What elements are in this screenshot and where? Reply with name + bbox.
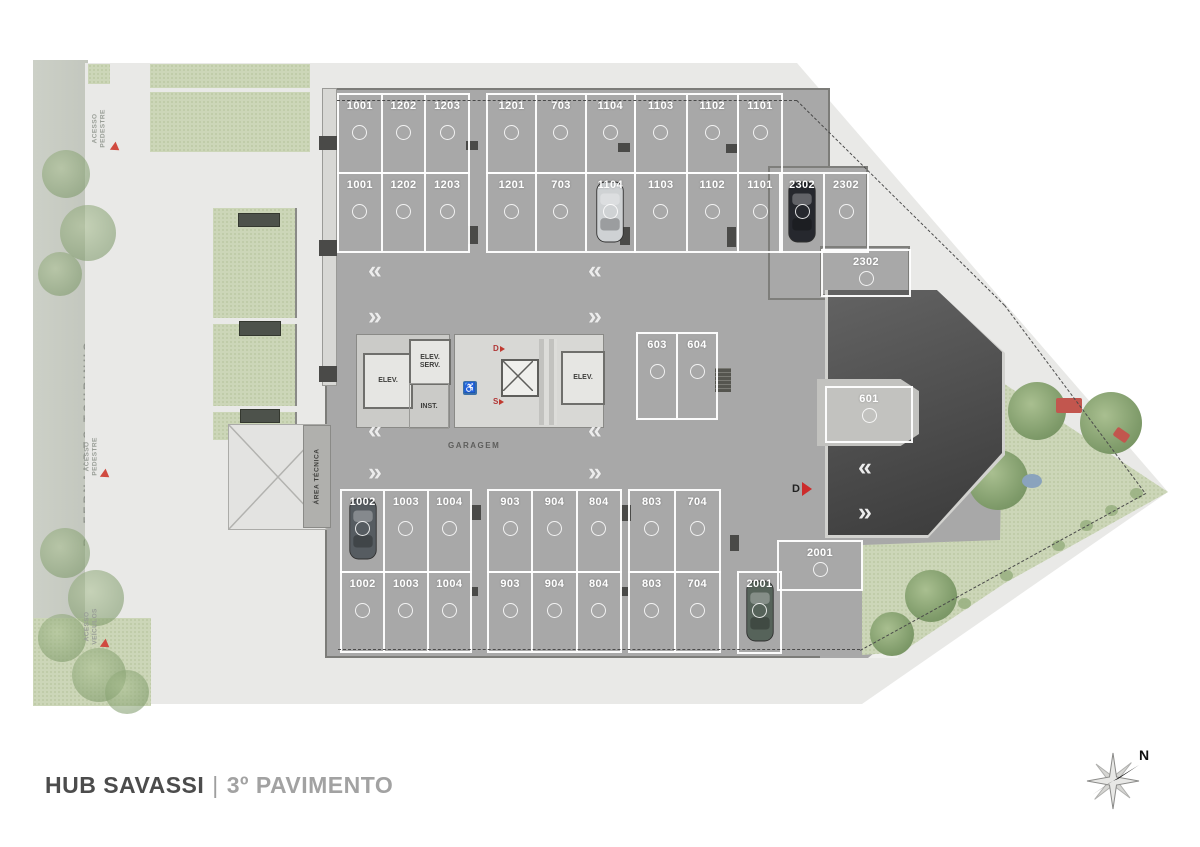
spot-badge: [839, 204, 854, 219]
spot-badge: [705, 125, 720, 140]
spot-number: 1004: [436, 496, 462, 508]
parking-spot-903: 903: [489, 491, 533, 571]
compass-rose: N: [1082, 742, 1154, 819]
stair-down-label: D: [493, 344, 499, 353]
tree: [905, 570, 957, 622]
stair-treads: [539, 339, 557, 425]
spot-number: 2302: [853, 256, 879, 268]
stair-arrow-icon: [499, 399, 504, 405]
parking-spot-604: 604: [678, 334, 716, 418]
spot-number: 803: [642, 578, 662, 590]
tree: [42, 150, 90, 198]
spot-number: 601: [859, 393, 879, 405]
parking-spot-1103: 1103: [636, 95, 688, 172]
pilaster: [730, 535, 739, 551]
wheelchair-icon: ♿: [463, 381, 477, 395]
parking-spot-903: 903: [489, 573, 533, 651]
spot-badge: [591, 603, 606, 618]
parking-spot-1201: 1201: [488, 95, 537, 172]
spot-number: 804: [589, 578, 609, 590]
parking-spot-1002: 1002: [342, 573, 385, 651]
chevron-right-icon: »: [588, 304, 600, 329]
parking-spot-703: 703: [537, 95, 586, 172]
parking-spot-2302: 2302: [823, 251, 909, 295]
elevator-right: ELEV.: [561, 351, 605, 405]
spot-badge: [644, 521, 659, 536]
spot-badge: [650, 364, 665, 379]
spot-number: 1001: [347, 179, 373, 191]
spot-badge: [442, 603, 457, 618]
garage-label: GARAGEM: [448, 441, 500, 450]
parking-spot-1202: 1202: [383, 174, 427, 251]
spot-badge: [398, 521, 413, 536]
parking-group-row-b-4: 1101: [737, 172, 783, 253]
spot-number: 1104: [598, 179, 623, 191]
pilaster: [319, 136, 337, 150]
parking-group-row-a-4: 1101: [737, 93, 783, 174]
spot-badge: [644, 603, 659, 618]
spot-number: 1101: [747, 179, 772, 191]
exit-letter: D: [792, 483, 800, 495]
spot-number: 1202: [390, 100, 416, 112]
technical-area: ÁREA TÉCNICA: [303, 425, 331, 528]
parking-spot-1101: 1101: [739, 95, 781, 172]
spot-badge: [705, 204, 720, 219]
spot-number: 703: [551, 100, 571, 112]
parking-spot-603: 603: [638, 334, 678, 418]
spot-number: 1001: [347, 100, 373, 112]
planter: [239, 321, 281, 336]
spot-number: 604: [687, 339, 707, 351]
spot-badge: [398, 603, 413, 618]
elevator-left: ELEV.: [363, 353, 413, 409]
parking-spot-804: 804: [578, 491, 620, 571]
parking-group-row-b-2: 1201703 1104: [486, 172, 636, 253]
spot-badge: [591, 521, 606, 536]
spot-number: 704: [687, 578, 707, 590]
spot-badge: [442, 521, 457, 536]
pilaster: [319, 240, 337, 256]
chevron-left-icon: «: [858, 455, 870, 480]
facade-hatch-strip: [322, 88, 337, 386]
elevator-block-left: ELEV. ELEV. SERV. INST.: [356, 334, 450, 428]
parking-group-row-c-2: 903904804: [487, 489, 622, 573]
spot-number: 903: [500, 578, 520, 590]
parking-spot-1203: 1203: [426, 174, 468, 251]
spot-badge: [440, 204, 455, 219]
parking-spot-1002: 1002: [342, 491, 385, 571]
spot-badge: [653, 125, 668, 140]
pilaster: [319, 366, 337, 382]
tree: [1080, 392, 1142, 454]
parking-spot-803: 803: [630, 573, 676, 651]
parking-spot-704: 704: [676, 573, 720, 651]
spot-number: 1003: [393, 578, 419, 590]
parking-spot-703: 703: [537, 174, 586, 251]
spot-number: 1103: [648, 100, 673, 112]
parking-group-603-604: 603604: [636, 332, 718, 420]
spot-number: 1203: [434, 179, 460, 191]
spot-number: 904: [545, 578, 565, 590]
spot-badge: [553, 125, 568, 140]
parking-spot-1201: 1201: [488, 174, 537, 251]
spot-number: 703: [551, 179, 571, 191]
parking-group-row-b-1: 100112021203: [337, 172, 470, 253]
parking-group-row-a-3: 11031102: [634, 93, 739, 174]
parking-spot-1104: 1104: [587, 174, 634, 251]
parking-spot-1001: 1001: [339, 174, 383, 251]
tree: [870, 612, 914, 656]
parking-group-row-b-3: 11031102: [634, 172, 739, 253]
spot-badge: [690, 364, 705, 379]
spot-number: 903: [500, 496, 520, 508]
parking-spot-1102: 1102: [688, 95, 738, 172]
parking-spot-601: 601: [827, 388, 911, 441]
parking-spot-2302: 2302: [825, 174, 867, 251]
spot-badge: [352, 204, 367, 219]
stair-up-label: S: [493, 397, 498, 406]
spot-badge: [504, 125, 519, 140]
spot-badge: [440, 125, 455, 140]
spot-badge: [795, 204, 810, 219]
parking-spot-1004: 1004: [429, 573, 470, 651]
spot-number: 1203: [434, 100, 460, 112]
spot-badge: [355, 603, 370, 618]
parking-spot-904: 904: [533, 573, 577, 651]
planter: [238, 213, 280, 227]
spot-badge: [503, 603, 518, 618]
spot-number: 1102: [700, 100, 725, 112]
spot-number: 1004: [436, 578, 462, 590]
spot-badge: [653, 204, 668, 219]
spot-number: 1101: [747, 100, 772, 112]
parking-group-row-c-3: 803704: [628, 489, 721, 573]
spot-number: 2001: [746, 578, 772, 590]
parking-group-row-a-1: 100112021203: [337, 93, 470, 174]
chevron-right-icon: »: [858, 500, 870, 525]
spot-badge: [862, 408, 877, 423]
stair-down-marker: D: [493, 344, 505, 353]
parking-spot-1001: 1001: [339, 95, 383, 172]
planting-strip: [150, 92, 310, 152]
tree: [60, 205, 116, 261]
parking-group-row-d-2: 903904804: [487, 571, 622, 653]
parking-spot-1203: 1203: [426, 95, 468, 172]
spot-badge: [690, 603, 705, 618]
tree: [38, 614, 86, 662]
chevron-left-icon: «: [588, 258, 600, 283]
spot-number: 1003: [393, 496, 419, 508]
spot-badge: [753, 204, 768, 219]
parking-spot-1202: 1202: [383, 95, 427, 172]
spot-number: 1002: [350, 496, 376, 508]
tree: [105, 670, 149, 714]
spot-badge: [690, 521, 705, 536]
parking-spot-1003: 1003: [385, 491, 428, 571]
spot-badge: [752, 603, 767, 618]
spot-badge: [547, 603, 562, 618]
title-separator: |: [212, 772, 218, 798]
floor-name: 3º PAVIMENTO: [227, 772, 393, 798]
spot-badge: [553, 204, 568, 219]
spot-badge: [504, 204, 519, 219]
spot-number: 2302: [789, 179, 815, 191]
stair-up-marker: S: [493, 397, 504, 406]
stair-core: D S ♿ ELEV.: [454, 334, 604, 428]
installations-room: INST.: [409, 383, 449, 429]
spot-badge: [603, 125, 618, 140]
planting-strip: [150, 64, 310, 88]
parking-spot-2302: 2302: [781, 174, 825, 251]
spot-number: 1102: [700, 179, 725, 191]
parking-group-row-d-1: 100210031004: [340, 571, 472, 653]
spot-number: 1201: [499, 100, 525, 112]
chevron-right-icon: »: [368, 304, 380, 329]
parking-spot-2001: 2001: [779, 542, 861, 589]
chevron-right-icon: »: [368, 460, 380, 485]
spot-number: 904: [545, 496, 565, 508]
spot-number: 603: [647, 339, 667, 351]
spot-badge: [396, 204, 411, 219]
exit-marker: D: [792, 482, 812, 496]
spot-badge: [547, 521, 562, 536]
spot-number: 1103: [648, 179, 673, 191]
project-name: HUB SAVASSI: [45, 772, 204, 798]
bush: [958, 598, 971, 609]
spot-badge: [503, 521, 518, 536]
technical-area-label: ÁREA TÉCNICA: [314, 448, 321, 504]
parking-group-row-c-1: 100210031004: [340, 489, 472, 573]
spot-badge: [813, 562, 828, 577]
sheet-title: HUB SAVASSI|3º PAVIMENTO: [45, 772, 393, 799]
parking-spot-1103: 1103: [636, 174, 688, 251]
spot-number: 1104: [598, 100, 623, 112]
parking-spot-2001-vertical: 2001: [737, 571, 782, 654]
parking-spot-2001-horizontal: 2001: [777, 540, 863, 591]
spot-badge: [396, 125, 411, 140]
parking-spot-2302-horizontal: 2302: [821, 249, 911, 297]
parking-spot-904: 904: [533, 491, 577, 571]
elevator-shaft: [501, 359, 539, 397]
parking-spot-804: 804: [578, 573, 620, 651]
parking-spot-1003: 1003: [385, 573, 428, 651]
parking-spot-601: 601: [825, 386, 913, 443]
planter: [240, 409, 280, 423]
chevron-left-icon: «: [368, 258, 380, 283]
pond: [1022, 474, 1042, 488]
projection-line: [338, 649, 860, 650]
parking-group-row-a-2: 12017031104: [486, 93, 636, 174]
parking-spot-1102: 1102: [688, 174, 738, 251]
parking-spot-704: 704: [676, 491, 720, 571]
tree: [38, 252, 82, 296]
tree: [40, 528, 90, 578]
spot-number: 1201: [499, 179, 525, 191]
elevator-service: ELEV. SERV.: [409, 339, 451, 385]
spot-number: 804: [589, 496, 609, 508]
compass-north-label: N: [1139, 747, 1149, 763]
access-vehicles-label: ACESSO VEÍCULOS: [84, 596, 101, 656]
parking-spot-1104: 1104: [587, 95, 634, 172]
parking-spot-2001: 2001: [739, 573, 780, 652]
spot-badge: [603, 204, 618, 219]
chevron-right-icon: »: [588, 460, 600, 485]
parking-spot-1004: 1004: [429, 491, 470, 571]
spot-number: 1002: [350, 578, 376, 590]
parking-group-row-d-3: 803704: [628, 571, 721, 653]
spot-number: 2001: [807, 547, 833, 559]
exit-arrow-icon: [802, 482, 812, 496]
spot-badge: [352, 125, 367, 140]
chevron-left-icon: «: [368, 418, 380, 443]
spot-number: 704: [687, 496, 707, 508]
stair-arrow-icon: [500, 346, 505, 352]
chevron-left-icon: «: [588, 418, 600, 443]
spot-number: 803: [642, 496, 662, 508]
planting-strip: [88, 64, 110, 84]
access-pedestrian-label-mid: ACESSO PEDESTRE: [84, 426, 101, 486]
parking-spot-803: 803: [630, 491, 676, 571]
spot-badge: [859, 271, 874, 286]
spot-number: 1202: [390, 179, 416, 191]
spot-number: 2302: [833, 179, 859, 191]
access-pedestrian-label-top: ACESSO PEDESTRE: [92, 98, 109, 158]
spot-badge: [753, 125, 768, 140]
parking-group-2302: 23022302: [779, 172, 869, 253]
parking-spot-1101: 1101: [739, 174, 781, 251]
